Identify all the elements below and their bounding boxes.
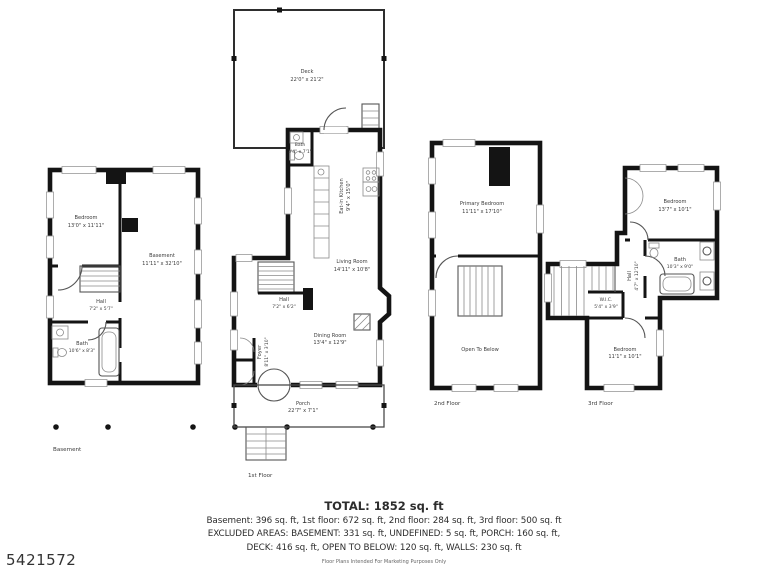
room-dims: 7'2" x 5'7" (89, 306, 113, 312)
second-floor-plan: Primary Bedroom 11'11" x 17'10" Open To … (429, 140, 544, 408)
area-summary: TOTAL: 1852 sq. ft Basement: 396 sq. ft,… (0, 499, 768, 565)
room-name: W.I.C. (600, 297, 613, 303)
plan-caption: 3rd Floor (588, 401, 614, 407)
room-name: Hall (96, 299, 106, 305)
floor-plan-sheet: Bedroom 13'0" x 11'11" Basement 11'11" x… (0, 0, 768, 576)
first-floor-plan: Deck 22'0" x 21'2" Bath 3'4" x 7'1" Eat-… (231, 8, 390, 480)
room-dims: 10'3" x 9'0" (667, 264, 693, 270)
room-dims: 4'7" x 12'10" (634, 261, 640, 290)
room-dims: 11'11" x 32'10" (142, 261, 182, 267)
room-name: Bedroom (663, 199, 686, 205)
room-dims: 9'4" x 15'0" (346, 181, 352, 211)
room-dims: 13'7" x 10'1" (658, 207, 691, 213)
room-name: Bath (295, 142, 306, 148)
room-dims: 8'11" x 3'10" (264, 337, 270, 366)
entry-steps (246, 427, 286, 460)
excluded-areas-line-2: DECK: 416 sq. ft, OPEN TO BELOW: 120 sq.… (0, 542, 768, 555)
plan-caption: 1st Floor (248, 473, 273, 479)
room-name: Dining Room (314, 333, 347, 339)
room-dims: 13'4" x 12'9" (313, 340, 346, 346)
room-dims: 11'11" x 17'10" (462, 209, 502, 215)
total-area: TOTAL: 1852 sq. ft (0, 499, 768, 513)
room-name: Bath (674, 257, 686, 263)
room-dims: 10'6" x 8'3" (69, 348, 95, 354)
room-name: Primary Bedroom (460, 201, 504, 207)
plan-caption: 2nd Floor (434, 401, 461, 407)
chimney-icon (106, 172, 126, 184)
room-name: Open To Below (461, 347, 499, 353)
room-dims: 5'4" x 3'9" (594, 304, 618, 310)
floor-areas-line: Basement: 396 sq. ft, 1st floor: 672 sq.… (0, 515, 768, 528)
room-name: Hall (279, 297, 289, 303)
room-name: Basement (149, 253, 175, 259)
third-floor-plan: Bedroom 13'7" x 10'1" Bath 10'3" x 9'0" … (545, 165, 721, 408)
chimney-icon (489, 147, 510, 186)
room-name: Eat-in Kitchen (339, 178, 345, 214)
room-name: Bedroom (613, 347, 636, 353)
room-name: Foyer (257, 344, 263, 359)
plan-caption: Basement (53, 447, 82, 453)
room-dims: 11'1" x 10'1" (608, 354, 641, 360)
room-name: Deck (301, 69, 314, 75)
room-dims: 22'0" x 21'2" (290, 77, 323, 83)
room-name: Bath (76, 341, 88, 347)
room-dims: 14'11" x 10'8" (334, 267, 370, 273)
listing-id: 5421572 (6, 551, 76, 569)
room-dims: 7'2" x 6'2" (272, 304, 296, 310)
room-name: Living Room (336, 259, 367, 265)
basement-plan: Bedroom 13'0" x 11'11" Basement 11'11" x… (47, 167, 202, 454)
room-dims: 13'0" x 11'11" (68, 223, 104, 229)
room-name: Bedroom (74, 215, 97, 221)
disclaimer: Floor Plans Intended For Marketing Purpo… (0, 559, 768, 565)
room-dims: 22'7" x 7'1" (288, 408, 318, 414)
floorplan-canvas: Bedroom 13'0" x 11'11" Basement 11'11" x… (0, 0, 768, 576)
room-name: Hall (627, 271, 633, 281)
excluded-areas-line-1: EXCLUDED AREAS: BASEMENT: 331 sq. ft, UN… (0, 528, 768, 541)
room-name: Porch (296, 401, 310, 407)
room-dims: 3'4" x 7'1" (288, 149, 312, 155)
